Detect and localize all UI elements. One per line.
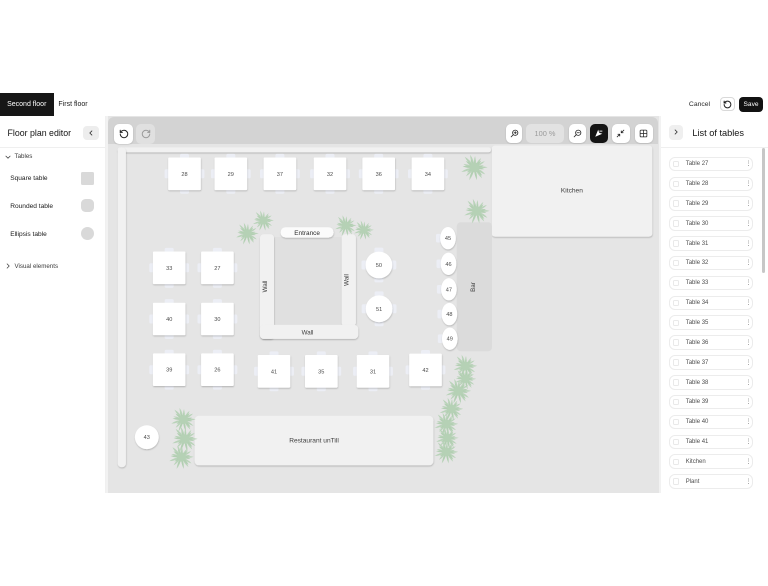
svg-text:51: 51 bbox=[375, 307, 381, 313]
svg-text:36: 36 bbox=[375, 172, 381, 178]
svg-text:Kitchen: Kitchen bbox=[560, 188, 582, 195]
svg-text:37: 37 bbox=[276, 172, 282, 178]
svg-text:40: 40 bbox=[166, 317, 172, 323]
svg-text:28: 28 bbox=[181, 172, 187, 178]
svg-text:50: 50 bbox=[375, 263, 381, 269]
svg-text:41: 41 bbox=[270, 369, 276, 375]
svg-text:42: 42 bbox=[422, 368, 428, 374]
svg-text:29: 29 bbox=[227, 172, 233, 178]
svg-text:26: 26 bbox=[214, 368, 220, 374]
svg-text:Wall: Wall bbox=[262, 281, 269, 293]
svg-text:Wall: Wall bbox=[343, 274, 350, 286]
svg-text:32: 32 bbox=[326, 172, 332, 178]
svg-text:45: 45 bbox=[444, 236, 450, 242]
svg-text:35: 35 bbox=[318, 369, 324, 375]
svg-text:Restaurant unTill: Restaurant unTill bbox=[289, 438, 339, 445]
svg-text:34: 34 bbox=[424, 172, 430, 178]
svg-text:30: 30 bbox=[214, 317, 220, 323]
svg-text:39: 39 bbox=[166, 368, 172, 374]
svg-text:43: 43 bbox=[143, 435, 149, 441]
svg-text:27: 27 bbox=[214, 266, 220, 272]
svg-text:Wall: Wall bbox=[301, 330, 313, 337]
svg-text:31: 31 bbox=[369, 369, 375, 375]
svg-text:46: 46 bbox=[445, 262, 451, 268]
svg-text:Bar: Bar bbox=[469, 282, 476, 292]
svg-text:49: 49 bbox=[446, 337, 452, 343]
svg-text:47: 47 bbox=[445, 287, 451, 293]
svg-text:Entrance: Entrance bbox=[294, 230, 320, 237]
svg-text:48: 48 bbox=[446, 312, 452, 318]
svg-text:33: 33 bbox=[166, 266, 172, 272]
